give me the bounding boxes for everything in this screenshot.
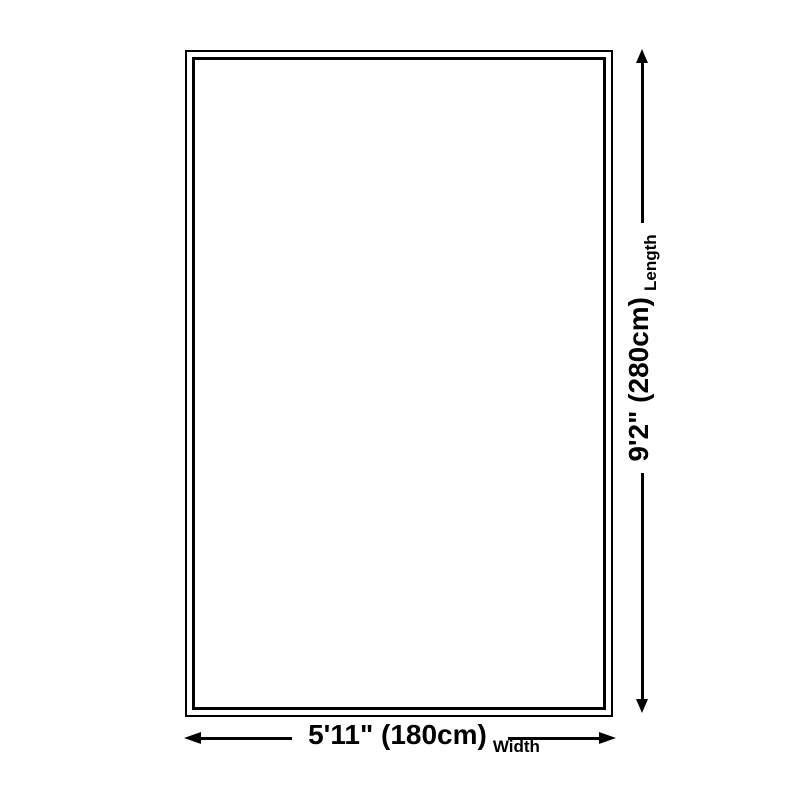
width-label: 5'11" (180cm)Width	[308, 719, 498, 757]
arrow-left-icon	[184, 732, 201, 744]
rug-outline-inner	[192, 57, 606, 710]
length-arrow-line-top	[641, 63, 644, 223]
length-sub-label: Length	[641, 234, 660, 291]
width-arrow-line-right	[508, 737, 599, 740]
length-label-box: 9'2" (280cm)Length	[620, 223, 664, 473]
rug-outline-outer	[185, 50, 613, 717]
arrow-down-icon	[636, 699, 648, 713]
length-arrow-line-bottom	[641, 473, 644, 699]
arrow-up-icon	[636, 49, 648, 63]
width-sub-label: Width	[493, 737, 540, 757]
width-dimension-annotation: 5'11" (180cm)Width	[184, 719, 616, 757]
arrow-right-icon	[599, 732, 616, 744]
width-arrow-line-left	[201, 737, 292, 740]
length-value: 9'2" (280cm)	[623, 297, 654, 462]
length-dimension-annotation: 9'2" (280cm)Length	[620, 49, 664, 713]
width-value: 5'11" (180cm)	[308, 719, 487, 750]
length-label: 9'2" (280cm)Length	[623, 234, 661, 461]
rug-dimension-diagram: 9'2" (280cm)Length 5'11" (180cm)Width	[0, 0, 800, 800]
